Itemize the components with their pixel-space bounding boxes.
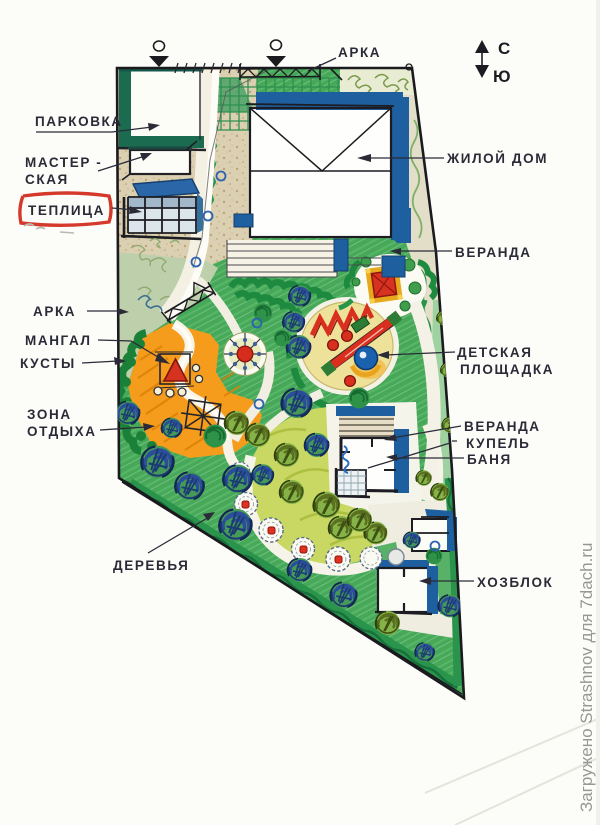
svg-text:ПЛОЩАДКА: ПЛОЩАДКА <box>460 362 554 377</box>
svg-text:ОТДЫХА: ОТДЫХА <box>27 424 97 439</box>
svg-text:МАСТЕР -: МАСТЕР - <box>25 155 102 170</box>
svg-text:Загружено Strashnov для 7dach.: Загружено Strashnov для 7dach.ru <box>577 543 596 812</box>
svg-text:ХОЗБЛОК: ХОЗБЛОК <box>477 575 553 590</box>
svg-text:АРКА: АРКА <box>338 45 381 60</box>
svg-text:ПАРКОВКА: ПАРКОВКА <box>35 114 123 129</box>
svg-text:Ю: Ю <box>493 67 511 86</box>
svg-text:ВЕРАНДА: ВЕРАНДА <box>464 419 541 434</box>
svg-text:С: С <box>498 39 510 58</box>
svg-text:АРКА: АРКА <box>33 304 76 319</box>
svg-text:ДЕТСКАЯ: ДЕТСКАЯ <box>457 345 533 360</box>
svg-text:БАНЯ: БАНЯ <box>467 452 512 467</box>
svg-text:ДЕРЕВЬЯ: ДЕРЕВЬЯ <box>113 558 189 573</box>
svg-text:МАНГАЛ: МАНГАЛ <box>25 333 92 348</box>
svg-text:ЗОНА: ЗОНА <box>27 407 72 422</box>
svg-text:ТЕПЛИЦА: ТЕПЛИЦА <box>28 203 105 218</box>
svg-text:ВЕРАНДА: ВЕРАНДА <box>455 245 532 260</box>
svg-text:ЖИЛОЙ ДОМ: ЖИЛОЙ ДОМ <box>446 151 548 166</box>
svg-text:КУПЕЛЬ: КУПЕЛЬ <box>466 436 530 451</box>
svg-text:КУСТЫ: КУСТЫ <box>20 356 76 371</box>
svg-text:СКАЯ: СКАЯ <box>25 172 69 187</box>
